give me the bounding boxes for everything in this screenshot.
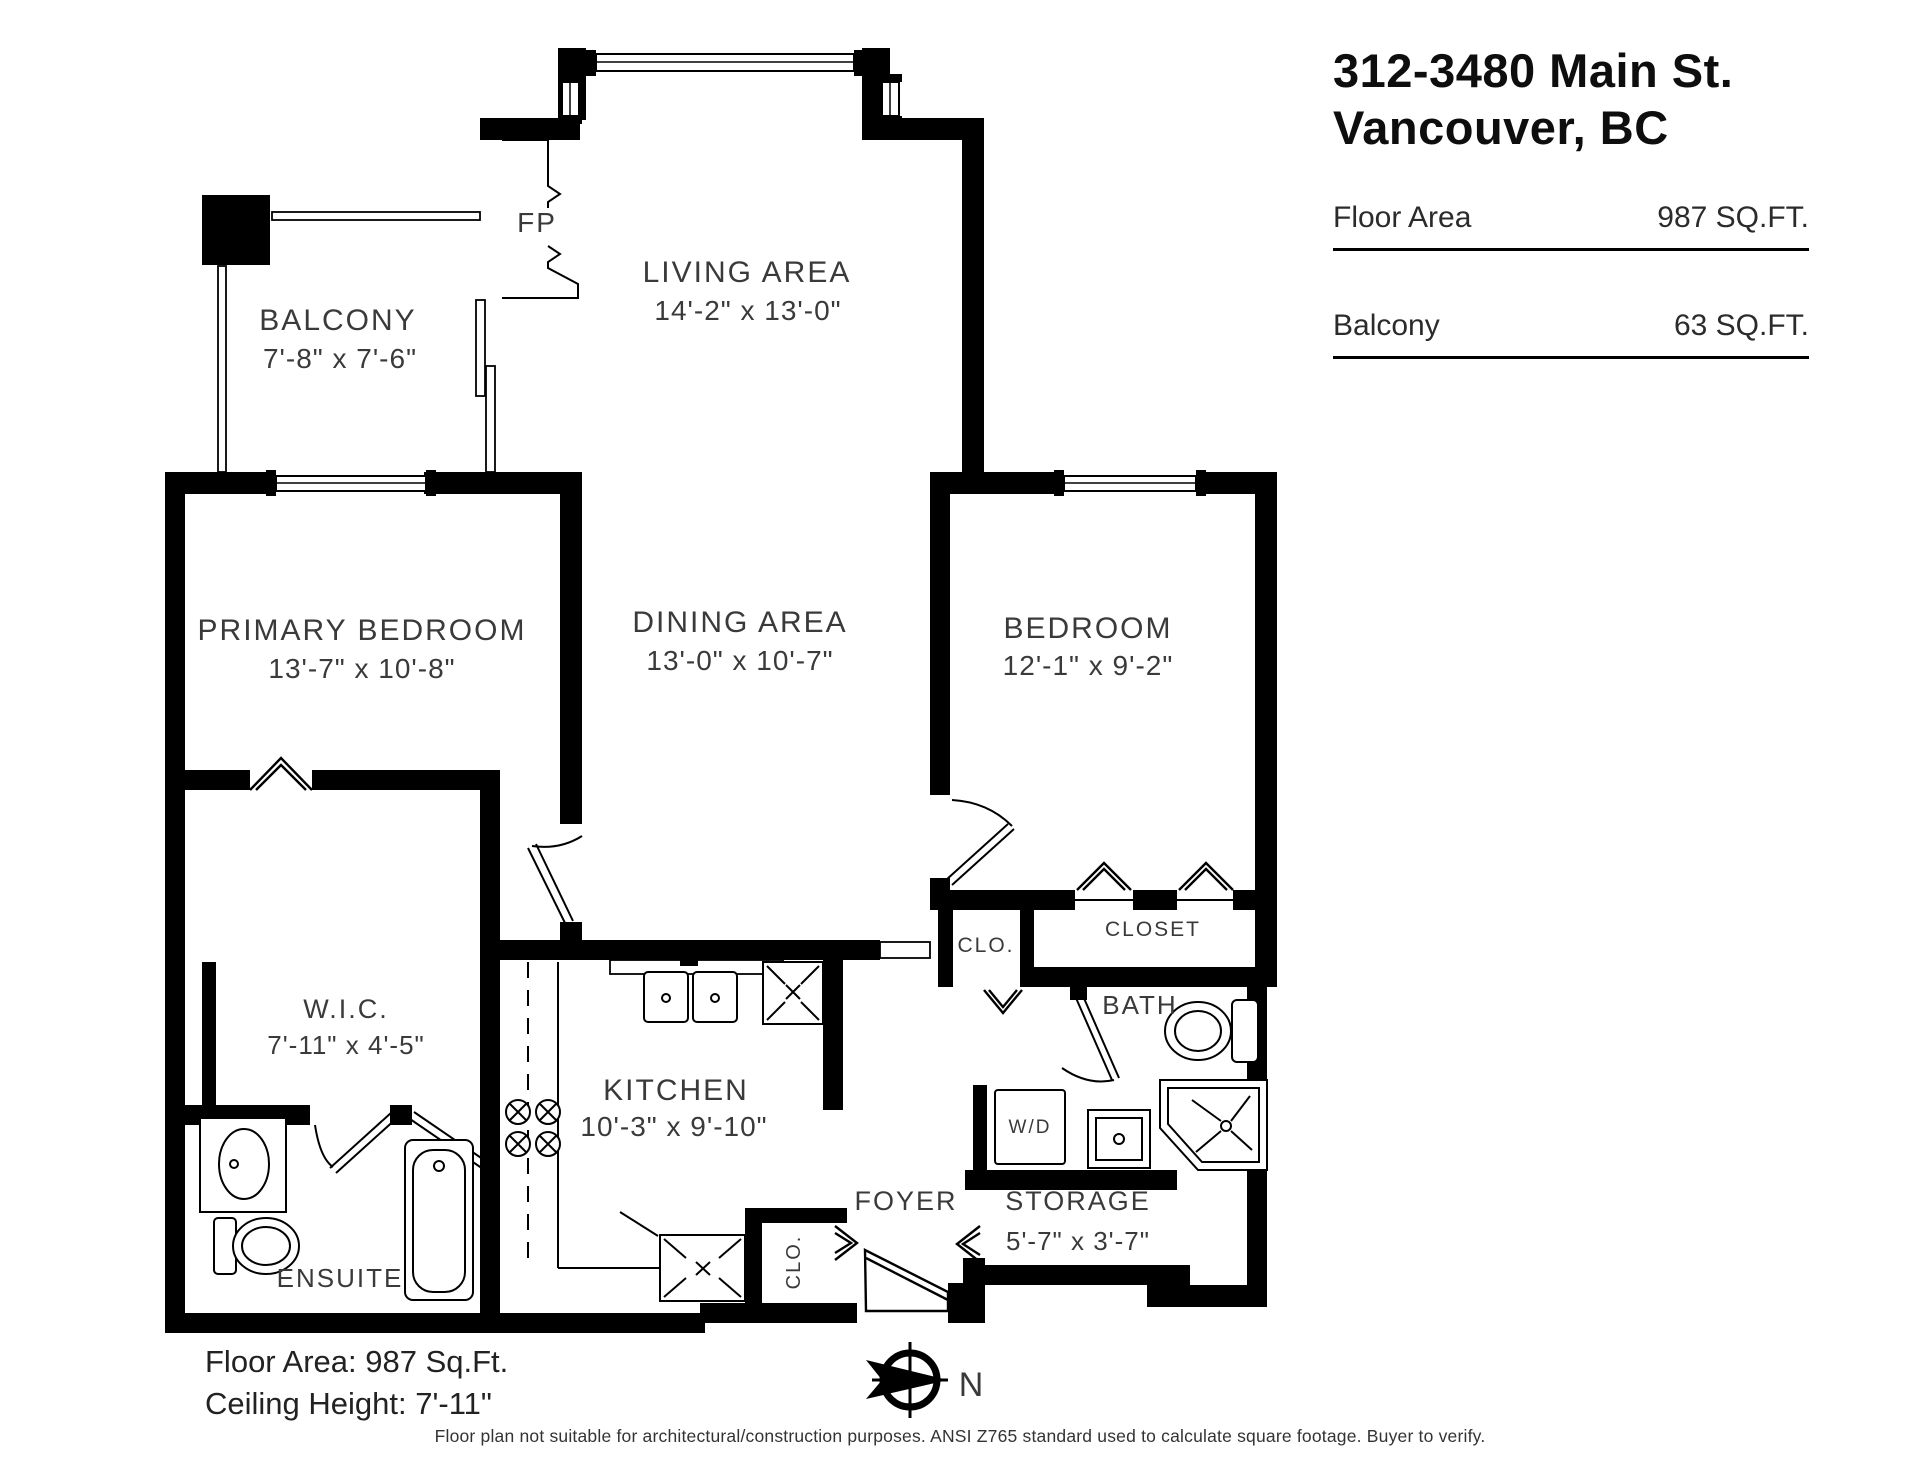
ensuite-label: ENSUITE [277,1263,404,1293]
patio-slider-panel [476,300,485,396]
wall-segment [202,195,270,265]
wall-segment [424,472,582,494]
clo-bedroom-label: CLO. [957,934,1014,957]
wall-segment [560,922,582,940]
wall-segment [165,770,250,790]
bathtub [405,1140,473,1300]
wd-label: W/D [1009,1117,1052,1138]
clo-foyer-label: CLO. [783,1235,805,1290]
wall-segment [930,472,1060,494]
dining-dims: 13'-0" x 10'-7" [646,645,833,676]
fireplace-label: FP [517,207,557,238]
clo-bifold [984,990,1022,1013]
wall-segment [560,494,582,824]
bath-label: BATH [1102,990,1177,1020]
wall-segment [962,118,984,494]
primary-label: PRIMARY BEDROOM [198,614,527,647]
refrigerator [763,962,823,1024]
wic-label: W.I.C. [303,994,389,1024]
wall-segment [930,494,950,795]
kitchen-dims: 10'-3" x 9'-10" [580,1111,767,1142]
balcony-label: BALCONY [259,304,416,337]
closet-bifold-left [1077,863,1131,890]
wall-segment [497,940,880,960]
wall-segment [745,1208,847,1223]
wall-segment [1033,967,1277,987]
shower [1160,1080,1267,1170]
note-floor-area: Floor Area: 987 Sq.Ft. [205,1344,508,1379]
closet-bifold-right [1179,863,1233,890]
bedroom-dims: 12'-1" x 9'-2" [1003,650,1174,681]
primary-dims: 13'-7" x 10'-8" [268,653,455,684]
wall-segment [930,890,1075,910]
ensuite-sink [200,1118,286,1212]
wall-segment [985,1265,1147,1285]
kitchen-peninsula [880,942,930,958]
wall-segment [1255,472,1277,910]
floor-plan-page: 312-3480 Main St. Vancouver, BC Floor Ar… [0,0,1920,1484]
wall-segment [1020,910,1034,987]
wall-segment [938,910,953,987]
wall-segment [165,1313,705,1333]
bay-window [558,50,902,124]
floor-plan-canvas: N BALCONY 7'-8" x 7'-6" FP LIVING AREA 1… [0,0,1920,1484]
compass-north-icon: N [866,1342,985,1418]
primary-bedroom-window [266,470,436,496]
bedroom-door [946,800,1014,885]
kitchen-label: KITCHEN [603,1074,749,1107]
wall-segment [480,770,500,1315]
closet-label: CLOSET [1105,918,1201,941]
wall-segment [1233,890,1277,910]
wall-segment [1147,1285,1267,1307]
foyer-closet-bifold [835,1226,857,1260]
toilet [1165,1000,1258,1062]
living-dims: 14'-2" x 13'-0" [654,295,841,326]
foyer-label: FOYER [854,1186,957,1216]
north-label: N [959,1366,986,1404]
patio-slider-panel [486,366,495,472]
entry-door [865,1250,948,1311]
storage-label: STORAGE [1005,1186,1151,1216]
bathroom-sink [1088,1110,1150,1168]
stove [506,1100,560,1156]
wall-segment [700,1303,857,1323]
storage-dims: 5'-7" x 3'-7" [1006,1226,1150,1256]
bedroom-window [1054,470,1206,496]
bedroom-label: BEDROOM [1003,612,1172,645]
primary-bedroom-door [528,836,582,925]
note-ceiling-height: Ceiling Height: 7'-11" [205,1386,492,1421]
wall-segment [745,1208,762,1323]
wall-segment [973,1085,987,1175]
wic-dims: 7'-11" x 4'-5" [267,1030,425,1060]
balcony-dims: 7'-8" x 7'-6" [263,343,417,374]
wall-segment [948,1283,985,1323]
disclaimer: Floor plan not suitable for architectura… [0,1426,1920,1447]
storage-bifold [957,1226,980,1262]
dining-label: DINING AREA [632,606,847,639]
wall-segment [312,770,500,790]
dishwasher [660,1235,745,1301]
wall-segment [165,472,185,1333]
wall-segment [1133,890,1177,910]
wic-opening-chevron [250,758,312,790]
wall-segment [823,960,843,1110]
wic-door [315,1112,398,1173]
wall-segment [202,962,216,1107]
living-label: LIVING AREA [643,256,852,289]
